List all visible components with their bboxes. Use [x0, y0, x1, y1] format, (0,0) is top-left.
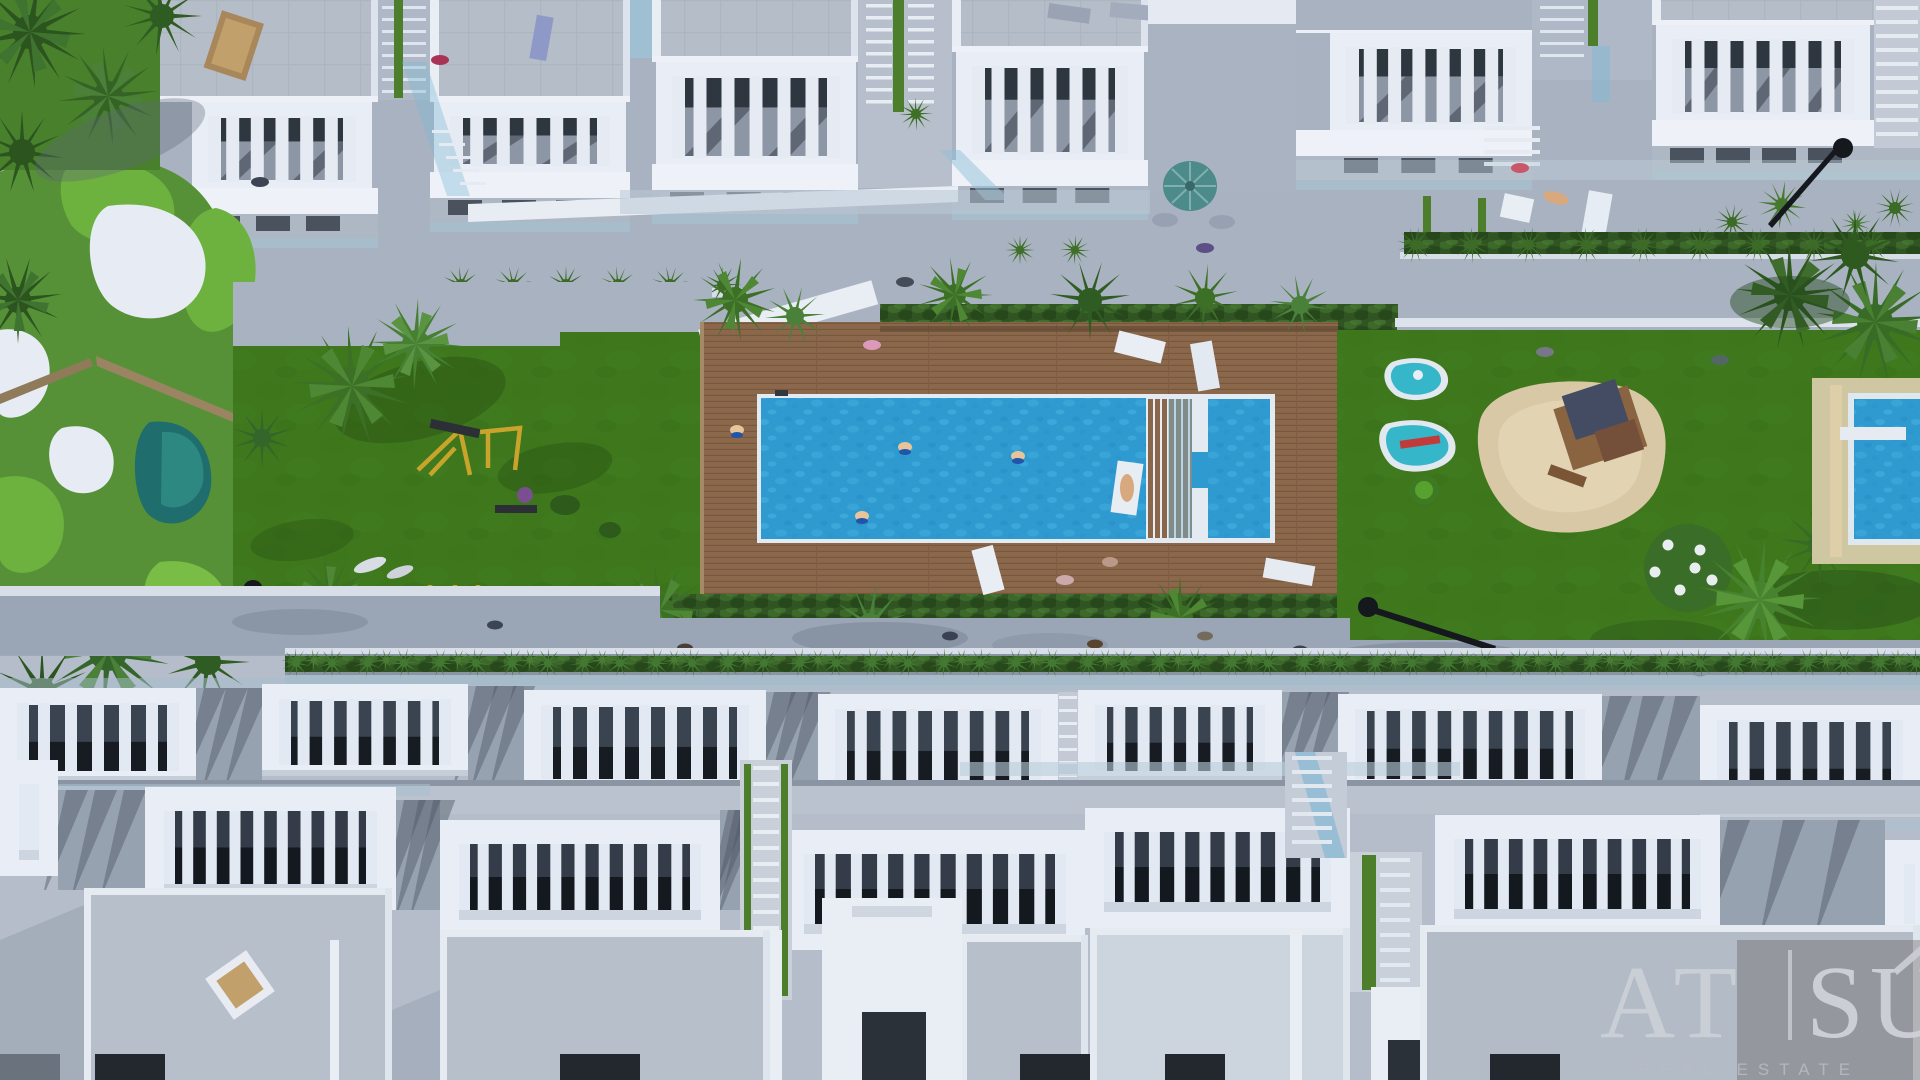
svg-text:REAL ESTATE: REAL ESTATE: [1638, 1060, 1860, 1079]
svg-text:AT: AT: [1600, 945, 1747, 1060]
